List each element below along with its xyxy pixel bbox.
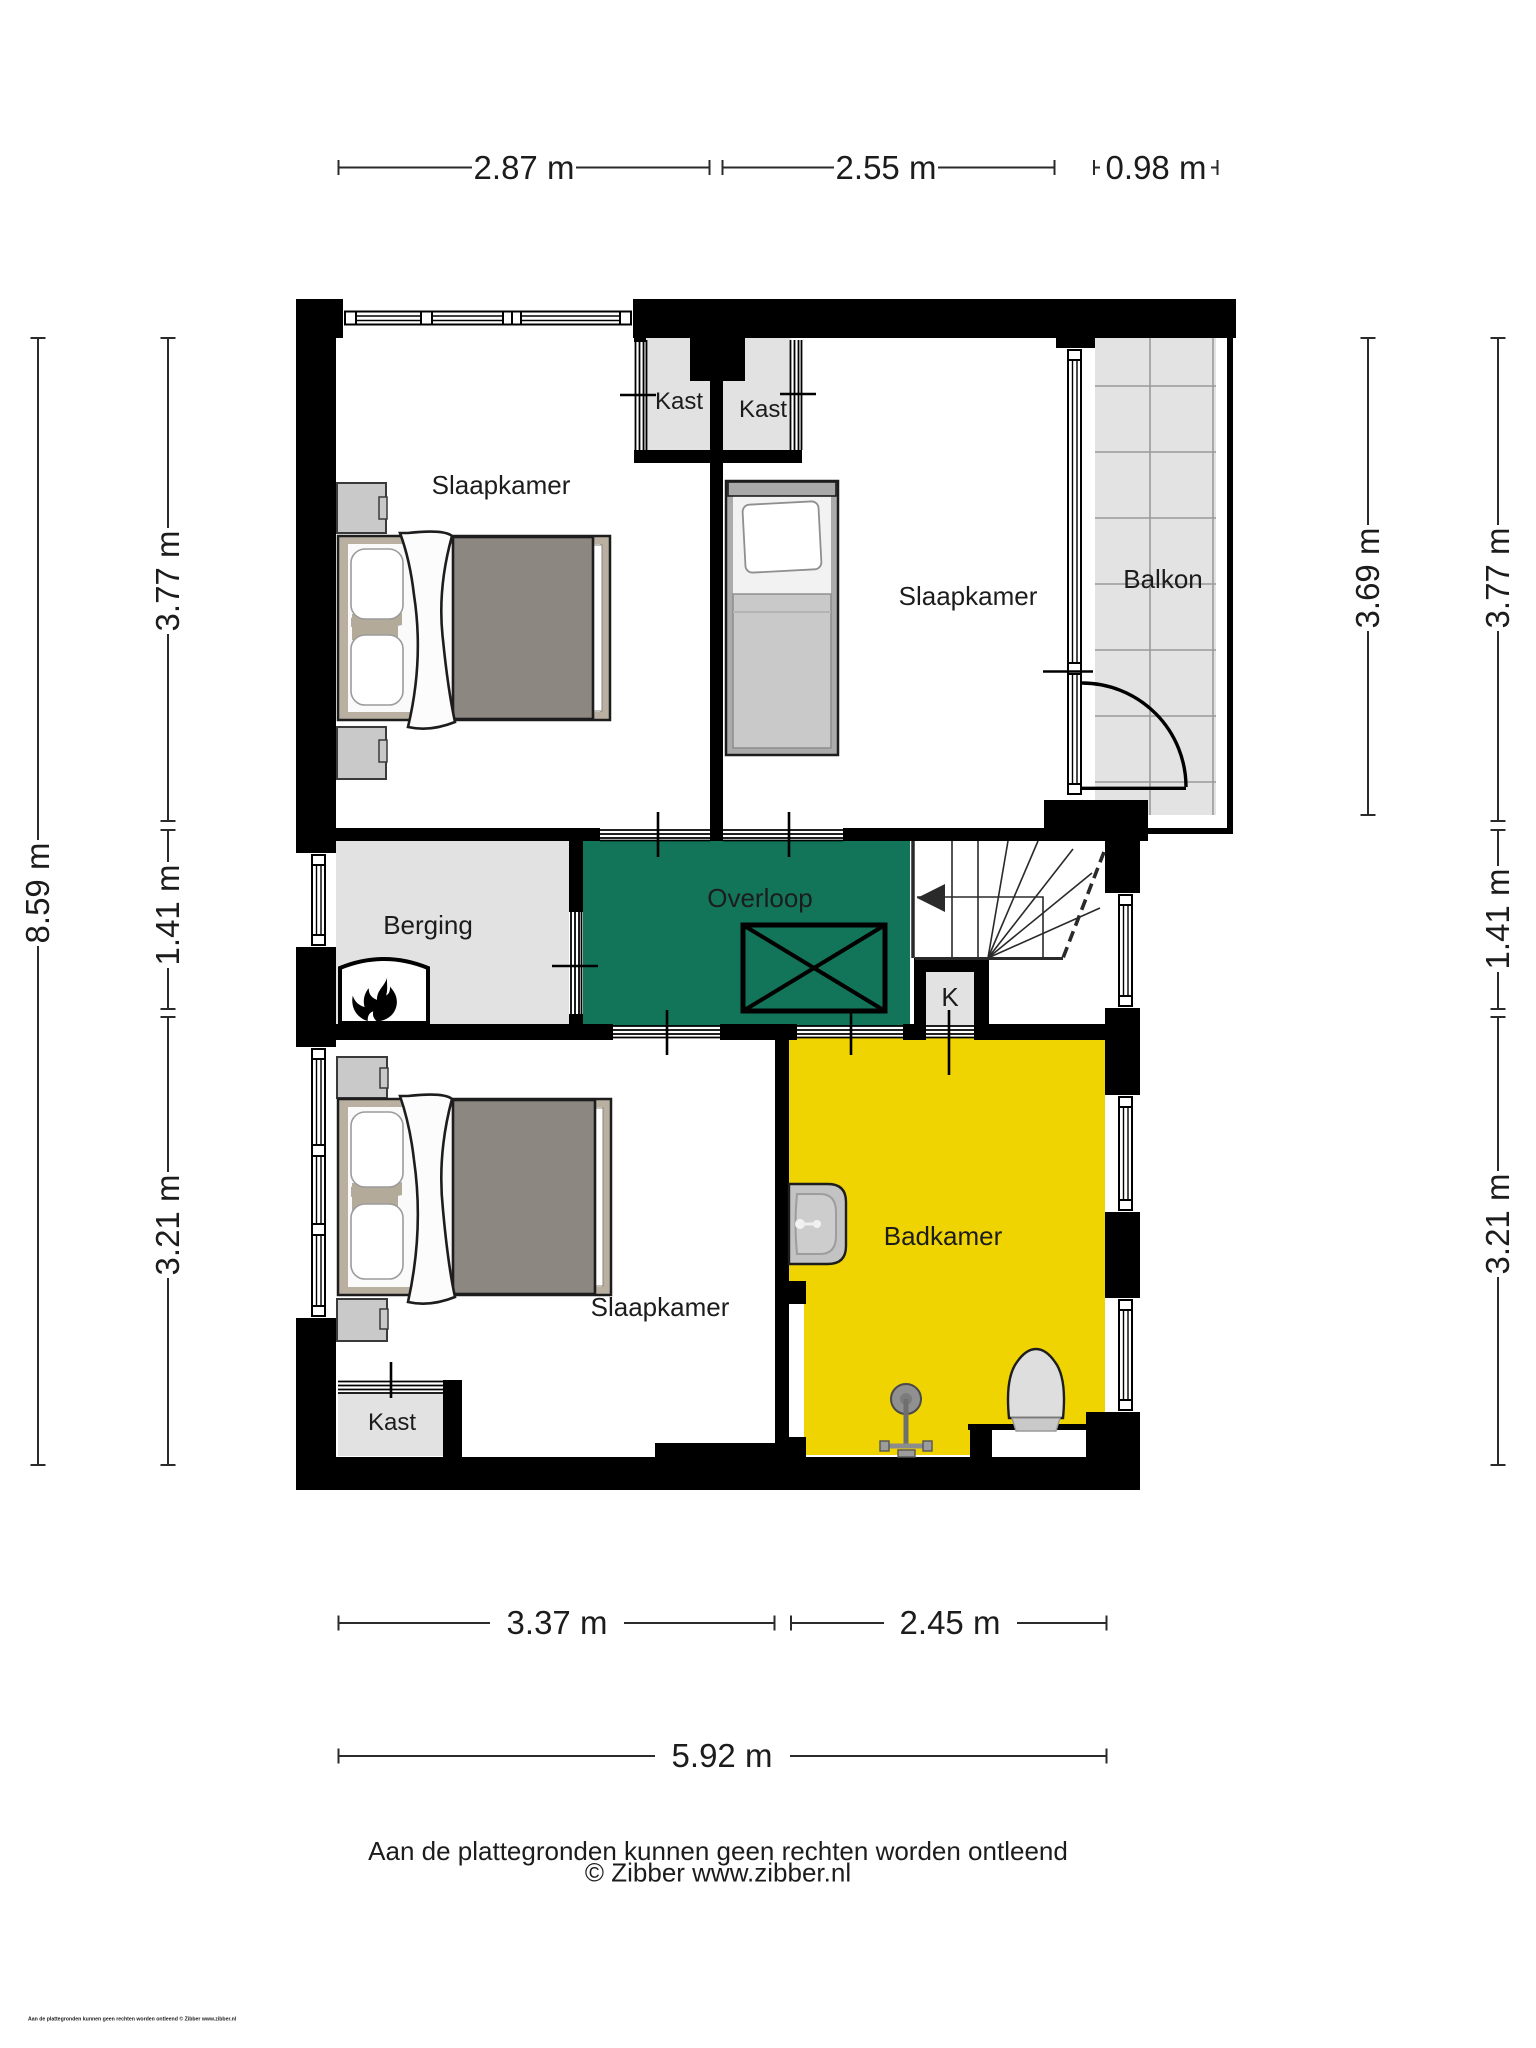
- svg-text:Slaapkamer: Slaapkamer: [899, 581, 1038, 611]
- svg-text:2.45 m: 2.45 m: [900, 1604, 1001, 1641]
- svg-text:3.69 m: 3.69 m: [1349, 528, 1386, 629]
- svg-text:5.92 m: 5.92 m: [672, 1737, 773, 1774]
- svg-text:Overloop: Overloop: [707, 883, 813, 913]
- svg-text:© Zibber www.zibber.nl: © Zibber www.zibber.nl: [585, 1858, 851, 1888]
- svg-text:Badkamer: Badkamer: [884, 1221, 1003, 1251]
- svg-text:1.41 m: 1.41 m: [1479, 869, 1516, 970]
- svg-text:2.55 m: 2.55 m: [836, 149, 937, 186]
- svg-text:Kast: Kast: [368, 1409, 416, 1436]
- svg-text:8.59 m: 8.59 m: [19, 843, 56, 944]
- svg-text:Slaapkamer: Slaapkamer: [432, 470, 571, 500]
- svg-text:Slaapkamer: Slaapkamer: [591, 1292, 730, 1322]
- svg-text:3.21 m: 3.21 m: [149, 1175, 186, 1276]
- svg-text:3.37 m: 3.37 m: [507, 1604, 608, 1641]
- svg-text:Balkon: Balkon: [1123, 564, 1203, 594]
- svg-text:0.98 m: 0.98 m: [1106, 149, 1207, 186]
- svg-text:3.77 m: 3.77 m: [1479, 528, 1516, 629]
- svg-text:Berging: Berging: [383, 910, 473, 940]
- svg-text:1.41 m: 1.41 m: [149, 865, 186, 966]
- svg-text:Aan de plattegronden kunnen ge: Aan de plattegronden kunnen geen rechten…: [28, 2016, 237, 2023]
- svg-text:Kast: Kast: [655, 388, 703, 415]
- svg-text:2.87 m: 2.87 m: [474, 149, 575, 186]
- svg-text:Kast: Kast: [739, 396, 787, 423]
- svg-text:K: K: [941, 982, 959, 1012]
- svg-text:3.77 m: 3.77 m: [149, 531, 186, 632]
- svg-text:3.21 m: 3.21 m: [1479, 1174, 1516, 1275]
